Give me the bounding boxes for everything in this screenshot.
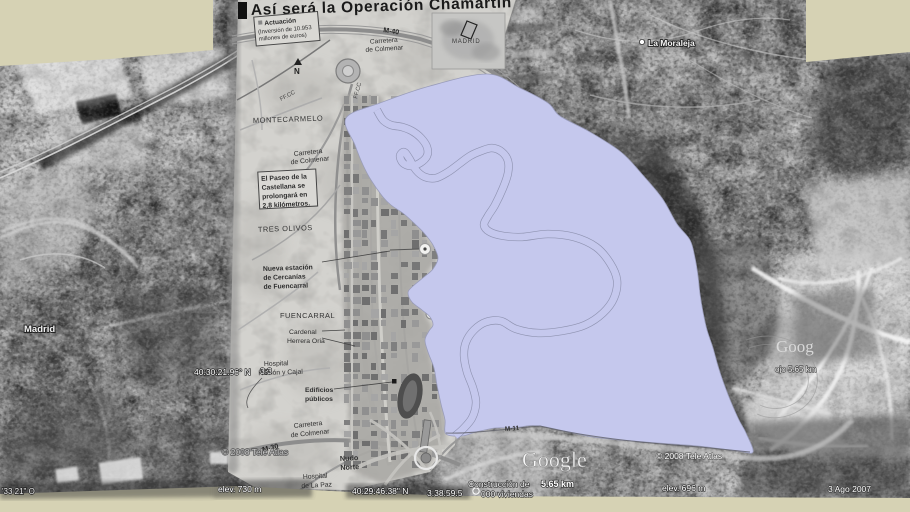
svg-text:Google: Google (522, 447, 587, 472)
svg-text:Herrera Oria: Herrera Oria (287, 338, 325, 345)
svg-text:000 viviendas: 000 viviendas (481, 489, 533, 499)
svg-text:La Moraleja: La Moraleja (648, 38, 695, 48)
svg-text:elev. 696 m: elev. 696 m (662, 483, 705, 493)
svg-text:N: N (294, 67, 300, 76)
svg-text:MADRID: MADRID (452, 39, 480, 45)
svg-text:5.65 km: 5.65 km (541, 479, 574, 489)
svg-text:Cardenal: Cardenal (289, 329, 317, 336)
svg-text:3:3: 3:3 (260, 366, 272, 376)
svg-text:Construcción de: Construcción de (468, 479, 530, 489)
svg-text:Madrid: Madrid (24, 324, 55, 335)
svg-text:Goog: Goog (776, 337, 814, 356)
svg-text:3:38:59.5: 3:38:59.5 (427, 488, 463, 498)
svg-text:Norte: Norte (340, 462, 359, 472)
svg-text:Edificios: Edificios (305, 387, 334, 394)
svg-text:TRES OLIVOS: TRES OLIVOS (258, 223, 313, 234)
svg-text:40:29:46.38" N: 40:29:46.38" N (352, 486, 408, 496)
svg-text:públicos: públicos (305, 396, 333, 403)
svg-text:FUENCARRAL: FUENCARRAL (280, 311, 335, 320)
svg-text:'33 21" O: '33 21" O (2, 487, 35, 496)
svg-text:40:30:21.96° N: 40:30:21.96° N (194, 367, 251, 377)
svg-text:de Cercanías: de Cercanías (263, 274, 306, 282)
svg-text:M-11: M-11 (505, 425, 520, 433)
svg-text:© 2008 Tele Atlas: © 2008 Tele Atlas (222, 447, 288, 457)
svg-text:© 2008 Tele Atlas: © 2008 Tele Atlas (656, 451, 722, 461)
svg-text:3 Ago 2007: 3 Ago 2007 (828, 484, 871, 494)
svg-text:elev. 730 m: elev. 730 m (218, 484, 261, 494)
svg-text:ojo 5.65 km: ojo 5.65 km (775, 365, 817, 374)
